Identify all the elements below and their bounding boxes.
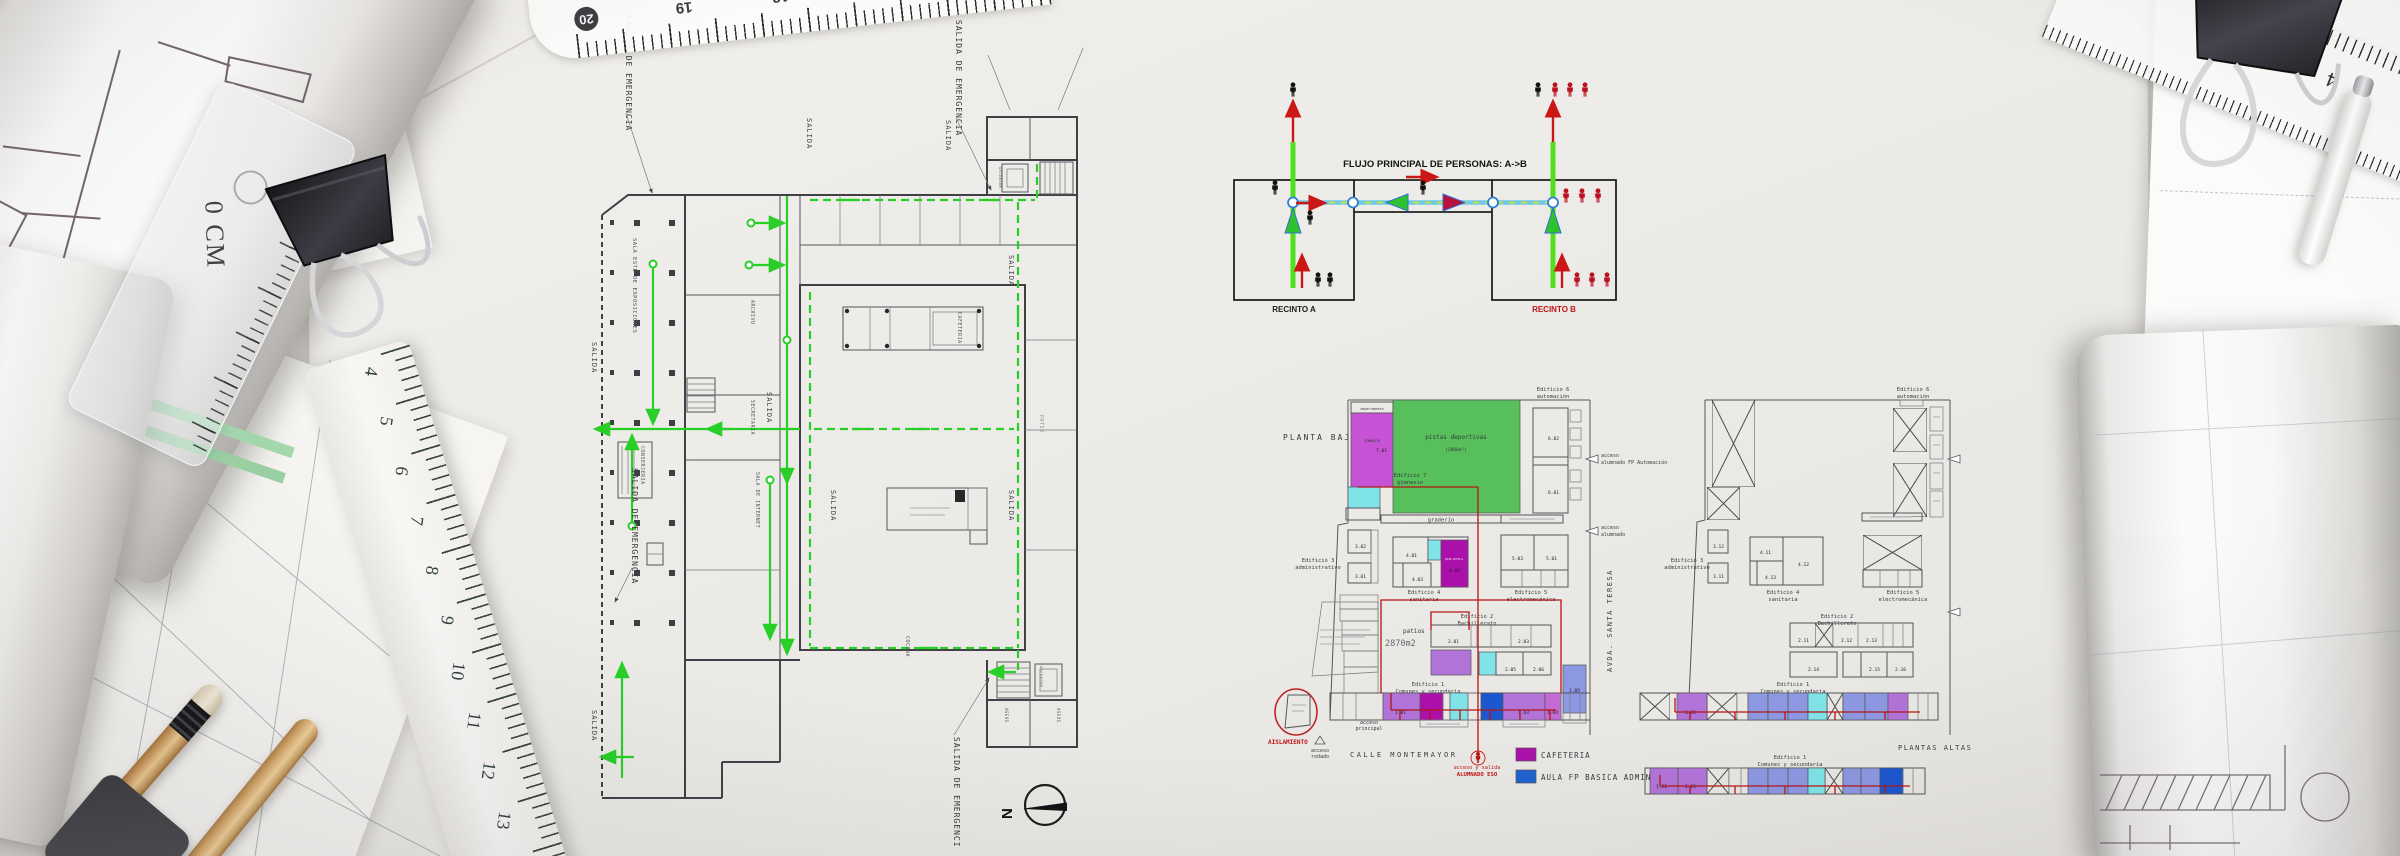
conserjeria-label: CONSERJERIA bbox=[639, 446, 645, 485]
avda-santa-teresa-label: AVDA. SANTA TERESA bbox=[1606, 569, 1614, 672]
flow-corridor-line bbox=[1285, 194, 1561, 233]
legend-cafeteria-label: CAFETERIA bbox=[1541, 751, 1591, 760]
room-code: 4.12 bbox=[1798, 562, 1809, 568]
ruler-number: 8 bbox=[421, 565, 443, 577]
room-code: 4.02 bbox=[1449, 568, 1460, 574]
edificio3-label: Edificio 3 bbox=[1302, 558, 1334, 564]
evacuation-routes bbox=[596, 164, 1037, 778]
aseos-label: ASEOS bbox=[1056, 708, 1061, 723]
room-code: 2.05 bbox=[1505, 667, 1516, 673]
acceso-alumnado-label: acceso bbox=[1601, 525, 1619, 531]
secretaria-label: SECRETARIA bbox=[749, 400, 755, 435]
room-code: 4.01 bbox=[1406, 553, 1417, 559]
ruler-number: 12 bbox=[477, 760, 500, 781]
room-code: 2.14 bbox=[1808, 667, 1819, 673]
salida-label: SALIDA bbox=[1007, 490, 1015, 521]
edificio6-label: Edificio 6 bbox=[1897, 387, 1929, 393]
edificio3-label2: administrativo bbox=[1295, 565, 1340, 571]
room-code: 5.01 bbox=[1546, 556, 1557, 562]
campus-plans: PLANTA BAJA departamento GIMNASIO 7.01 p… bbox=[1260, 380, 1980, 800]
plantas-altas-plan: Edificio 6 automación Edificio 3 adminis… bbox=[1640, 387, 1972, 794]
ruler-number: 6 bbox=[390, 465, 412, 477]
patios-area-label: 2870m2 bbox=[1385, 639, 1416, 649]
campus-legend: CAFETERIA AULA FP BASICA ADMIN. bbox=[1516, 748, 1657, 783]
edificio6-label2: automación bbox=[1897, 393, 1929, 400]
internet-label: SALA DE INTERNET bbox=[754, 472, 760, 528]
plantas-altas-title: PLANTAS ALTAS bbox=[1898, 744, 1972, 752]
ruler-number: 18 bbox=[771, 0, 790, 6]
planta-baja-plan: PLANTA BAJA departamento GIMNASIO 7.01 p… bbox=[1268, 387, 1667, 783]
flow-up-triangle-icon bbox=[1285, 208, 1301, 233]
recinto-b-label: RECINTO B bbox=[1532, 305, 1576, 314]
edificio1-label: Edificio 1 bbox=[1777, 682, 1809, 688]
recinto-a-label: RECINTO A bbox=[1272, 305, 1316, 314]
roll-right-detail bbox=[2085, 330, 2400, 856]
edificio1-label: Edificio 1 bbox=[1774, 755, 1806, 761]
edificio1-label2: Comunes y secundaria bbox=[1758, 762, 1823, 768]
edificio6-label2: automación bbox=[1537, 393, 1569, 400]
room-code: 2.06 bbox=[1533, 667, 1544, 673]
planta-baja-title: PLANTA BAJA bbox=[1283, 433, 1358, 442]
calle-montemayor-label: CALLE MONTEMAYOR bbox=[1350, 751, 1457, 759]
room-code: 3.11 bbox=[1713, 574, 1724, 580]
pistas-label: pistas deportivas bbox=[1425, 434, 1487, 441]
binder-clip-wire bbox=[2177, 57, 2262, 170]
edificio5-label: Edificio 5 bbox=[1515, 590, 1547, 596]
ruler-number: 19 bbox=[675, 0, 694, 17]
salida-label: SALIDA bbox=[590, 342, 598, 373]
room-code: 6.01 bbox=[1548, 490, 1559, 496]
acceso-arrow-icon bbox=[1586, 455, 1598, 463]
emergency-exit-label: SALIDA DE EMERGENCIA bbox=[952, 737, 961, 846]
edificio2-label2: Bachillerato bbox=[1818, 621, 1857, 627]
salida-label: SALIDA bbox=[590, 710, 598, 741]
room-code: 3.02 bbox=[1355, 544, 1366, 550]
room-code: 2.03 bbox=[1518, 639, 1529, 645]
room-code: 2.11 bbox=[1798, 638, 1809, 644]
acceso-rodado-label2: rodado bbox=[1311, 754, 1329, 760]
archivo-label: ARCHIVO bbox=[749, 300, 755, 325]
edificio3-label2: administrativo bbox=[1664, 565, 1709, 571]
room-code: 2.13 bbox=[1866, 638, 1877, 644]
room-code: 4.03 bbox=[1412, 577, 1423, 583]
desk-photo-scene: CAFETERIA SAL bbox=[0, 0, 2400, 856]
edificio4-label: Edificio 4 bbox=[1767, 590, 1799, 596]
room-code: 4.11 bbox=[1760, 550, 1771, 556]
salida-label: SALIDA bbox=[765, 392, 773, 423]
edificio2-label: Edificio 2 bbox=[1821, 614, 1853, 620]
legend-cafeteria-swatch bbox=[1516, 748, 1536, 761]
departamento-label: departamento bbox=[1360, 407, 1383, 411]
edificio4-label: Edificio 4 bbox=[1408, 590, 1440, 596]
biblioteca-label: BIBLIOTECA bbox=[1445, 557, 1463, 561]
flow-people-icons bbox=[1272, 82, 1610, 286]
flow-title: FLUJO PRINCIPAL DE PERSONAS: A->B bbox=[1343, 159, 1527, 170]
edificio1-label: Edificio 1 bbox=[1412, 682, 1444, 688]
edificio3-label: Edificio 3 bbox=[1671, 558, 1703, 564]
binder-clip-left bbox=[235, 140, 465, 370]
room-code: 1.21 bbox=[1656, 784, 1667, 790]
ruler-number: 7 bbox=[406, 515, 428, 527]
room-code: 2.15 bbox=[1869, 667, 1880, 673]
edificio5-label: Edificio 5 bbox=[1887, 590, 1919, 596]
ruler-number: 9 bbox=[436, 614, 458, 626]
aseos-label: ASEOS bbox=[1004, 708, 1009, 723]
compass: N bbox=[999, 785, 1067, 825]
flow-red-arrows bbox=[1293, 102, 1562, 288]
salida-label: SALIDA bbox=[829, 490, 837, 521]
acceso-fp-label2: alumnado FP Automación bbox=[1601, 459, 1667, 466]
patio-table-block bbox=[887, 488, 987, 544]
acceso-eso-label: acceso y salida bbox=[1454, 765, 1501, 771]
flow-arrow-left-icon bbox=[1386, 194, 1408, 211]
bottom-annex bbox=[987, 662, 1077, 747]
sheet-fold-line bbox=[2160, 190, 2400, 201]
ruler-number: 4 bbox=[360, 366, 382, 378]
salida-label: SALIDA bbox=[805, 118, 813, 149]
room-code: 7.01 bbox=[1376, 448, 1387, 454]
aislamiento-label: AISLAMIENTO bbox=[1268, 739, 1308, 746]
acceso-arrow-icon bbox=[1586, 527, 1598, 535]
compass-north-label: N bbox=[999, 808, 1016, 819]
flow-arrow-right-icon bbox=[1443, 194, 1465, 211]
room-code: 2.16 bbox=[1895, 667, 1906, 673]
ruler-number: 11 bbox=[462, 711, 485, 731]
ruler-number: 10 bbox=[446, 661, 469, 682]
edificio2-label: Edificio 2 bbox=[1461, 614, 1493, 620]
gimnasio-label: GIMNASIO bbox=[1364, 439, 1380, 443]
edificio7-label2: gimnasio bbox=[1397, 480, 1423, 486]
ascensor-label: ASCENSOR bbox=[1039, 666, 1043, 688]
edificio7-label: Edificio 7 bbox=[1394, 473, 1426, 479]
ruler-number: 5 bbox=[375, 415, 397, 427]
room-code: 3.12 bbox=[1713, 544, 1724, 550]
legend-aula-swatch bbox=[1516, 770, 1536, 783]
room-code: 1.04 bbox=[1547, 710, 1558, 716]
acceso-principal-label2: principal bbox=[1355, 726, 1382, 732]
salida-label: SALIDA bbox=[1007, 255, 1015, 286]
room-labels: SALA ESTE DE EXPOSICIONES ARCHIVO SECRET… bbox=[631, 167, 1061, 723]
room-code: 3.01 bbox=[1355, 574, 1366, 580]
acceso-eso-label2: ALUMNADO ESO bbox=[1457, 772, 1498, 778]
room-code: 2.01 bbox=[1448, 639, 1459, 645]
acceso-fp-label: acceso bbox=[1601, 453, 1619, 459]
room-code: 6.02 bbox=[1548, 436, 1559, 442]
pistas-area-label: (2000m²) bbox=[1445, 447, 1467, 453]
edificio6-label: Edificio 6 bbox=[1537, 387, 1569, 393]
edificio5-label2: electromecánica bbox=[1879, 596, 1928, 603]
column-grid bbox=[612, 220, 672, 660]
graderio-label: graderío bbox=[1428, 517, 1455, 524]
salida-label: SALIDA bbox=[944, 120, 952, 151]
ruler-number: 13 bbox=[492, 810, 515, 831]
cafeteria-block: CAFETERIA bbox=[843, 307, 983, 350]
people-flow-diagram: FLUJO PRINCIPAL DE PERSONAS: A->B RECINT… bbox=[1230, 50, 1700, 320]
cocina-label: COCINA bbox=[904, 636, 910, 657]
cafeteria-label: CAFETERIA bbox=[956, 312, 962, 344]
edificio4-label2: sanitaria bbox=[1768, 597, 1797, 603]
patio-label: PATIO bbox=[1038, 415, 1044, 433]
patios-label: patios bbox=[1403, 628, 1425, 635]
room-code: 2.12 bbox=[1841, 638, 1852, 644]
acceso-alumnado-label2: alumnado bbox=[1601, 532, 1625, 538]
emergency-exit-label: SALIDA DE EMERGENCIA bbox=[630, 468, 639, 584]
ascensor-label: ASCENSOR bbox=[998, 167, 1002, 189]
room-code: 5.03 bbox=[1512, 556, 1523, 562]
ruler-zero-label: 0 CM bbox=[198, 200, 230, 269]
legend-aula-label: AULA FP BASICA ADMIN. bbox=[1541, 773, 1657, 782]
emergency-exit-labels: SALIDA DE EMERGENCIA SALIDA DE EMERGENCI… bbox=[615, 15, 991, 846]
room-code: 4.13 bbox=[1765, 575, 1776, 581]
flow-up-triangle-icon bbox=[1545, 208, 1561, 233]
emergency-exit-label: SALIDA DE EMERGENCIA bbox=[954, 20, 963, 136]
ruler-number-badge: 20 bbox=[573, 6, 600, 33]
aislamiento-circle bbox=[1275, 689, 1317, 735]
acceso-rodado-icon bbox=[1315, 736, 1325, 744]
sala-este-label: SALA ESTE DE EXPOSICIONES bbox=[631, 238, 637, 333]
